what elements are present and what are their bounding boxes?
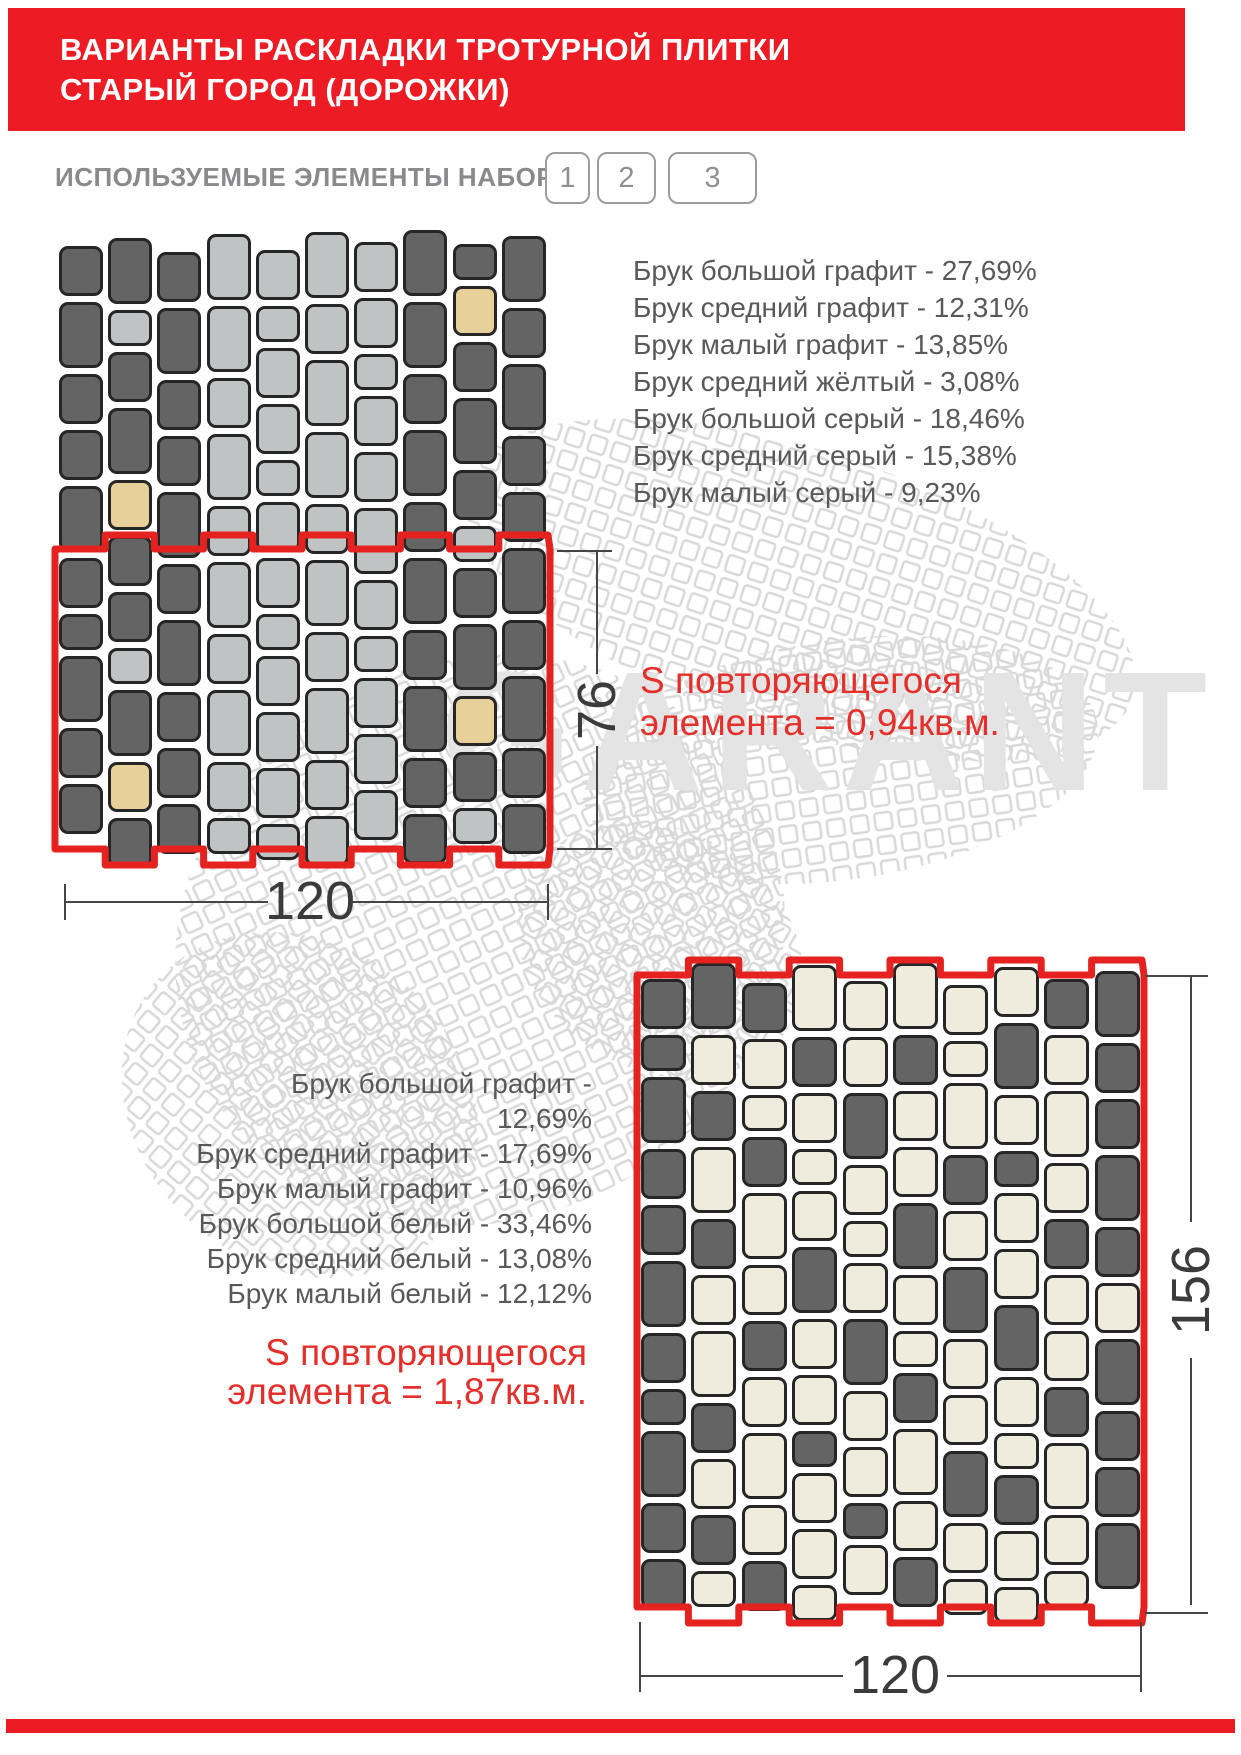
dim-line	[1190, 977, 1192, 1222]
dim-line	[65, 901, 268, 903]
area-note-line2: элемента = 1,87кв.м.	[180, 1372, 587, 1411]
dim-tick	[64, 884, 66, 920]
layout1-area-note: S повторяющегося элемента = 0,94кв.м.	[640, 660, 1060, 744]
list-item: Брук средний серый - 15,38%	[633, 437, 1053, 474]
dim-line	[1190, 1358, 1192, 1605]
dim-ext-line	[557, 848, 612, 850]
dim-line	[640, 1675, 843, 1677]
dim-ext-line	[557, 550, 612, 552]
list-item: Брук малый графит - 10,96%	[190, 1171, 592, 1206]
list-item: Брук средний жёлтый - 3,08%	[633, 363, 1053, 400]
dim-label-p2-width: 120	[835, 1646, 955, 1704]
list-item: Брук большой графит - 12,69%	[190, 1066, 592, 1136]
dim-label-p2-height: 156	[1162, 1205, 1220, 1375]
list-item: Брук малый графит - 13,85%	[633, 326, 1053, 363]
dim-ext-line	[1145, 975, 1208, 977]
area-note-line1: S повторяющегося	[640, 660, 1060, 702]
dim-label-p1-width: 120	[250, 872, 370, 930]
set-element-button-2[interactable]: 2	[597, 152, 656, 204]
set-element-button-1[interactable]: 1	[545, 152, 590, 204]
dim-ext-line	[1140, 1622, 1142, 1692]
dim-ext-line	[1145, 1612, 1208, 1614]
layout2-percentages-list: Брук большой графит - 12,69% Брук средни…	[190, 1066, 592, 1311]
list-item: Брук средний графит - 17,69%	[190, 1136, 592, 1171]
dim-ext-line	[639, 1622, 641, 1692]
list-item: Брук большой графит - 27,69%	[633, 252, 1053, 289]
repeat-element-outline	[55, 535, 550, 865]
page-title-line2: СТАРЫЙ ГОРОД (ДОРОЖКИ)	[60, 72, 510, 108]
list-item: Брук малый серый - 9,23%	[633, 474, 1053, 511]
list-item: Брук большой серый - 18,46%	[633, 400, 1053, 437]
elements-set-label: ИСПОЛЬЗУЕМЫЕ ЭЛЕМЕНТЫ НАБОРА	[55, 162, 571, 193]
list-item: Брук средний графит - 12,31%	[633, 289, 1053, 326]
dim-tick	[547, 884, 549, 920]
layout1-percentages-list: Брук большой графит - 27,69% Брук средни…	[633, 252, 1053, 511]
list-item: Брук малый белый - 12,12%	[190, 1276, 592, 1311]
footer-bar	[6, 1719, 1235, 1733]
dim-line	[947, 1675, 1141, 1677]
dim-line	[352, 901, 549, 903]
layout2-area-note: S повторяющегося элемента = 1,87кв.м.	[180, 1333, 587, 1411]
poster-page: GARANT ВАРИАНТЫ РАСКЛАДКИ ТРОТУРНОЙ ПЛИТ…	[0, 0, 1241, 1755]
area-note-line2: элемента = 0,94кв.м.	[640, 702, 1060, 744]
list-item: Брук средний белый - 13,08%	[190, 1241, 592, 1276]
set-element-button-3[interactable]: 3	[668, 152, 757, 204]
dim-label-p1-height: 76	[568, 650, 626, 770]
page-title-line1: ВАРИАНТЫ РАСКЛАДКИ ТРОТУРНОЙ ПЛИТКИ	[60, 32, 791, 68]
list-item: Брук большой белый - 33,46%	[190, 1206, 592, 1241]
area-note-line1: S повторяющегося	[180, 1333, 587, 1372]
header-banner: ВАРИАНТЫ РАСКЛАДКИ ТРОТУРНОЙ ПЛИТКИ СТАР…	[8, 8, 1185, 131]
repeat-element-outlines	[0, 0, 1241, 1755]
repeat-element-outline	[637, 960, 1144, 1623]
